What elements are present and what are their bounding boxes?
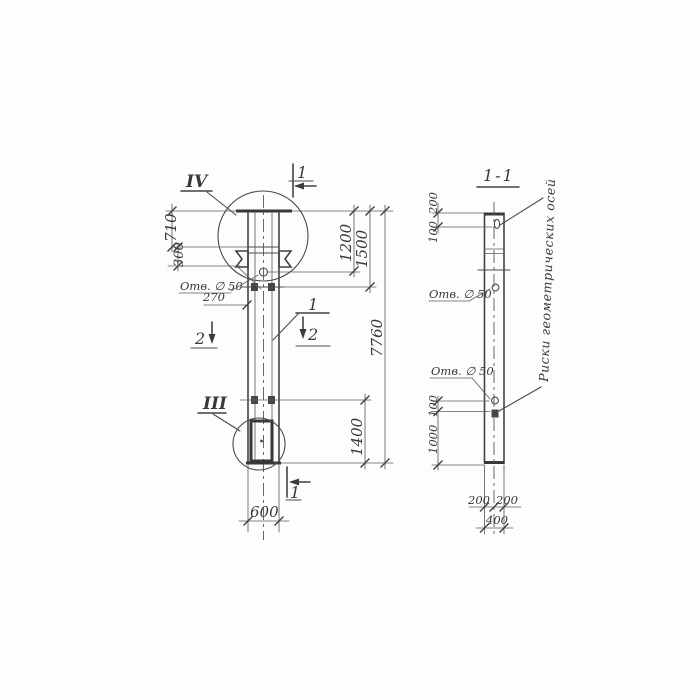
dim-100-top: 100	[426, 221, 440, 243]
dim-270: 270	[202, 290, 225, 304]
hole-lower-section	[492, 397, 499, 404]
flange-gusset-left	[236, 251, 248, 267]
hole-note-upper: Отв. ∅ 50	[429, 287, 492, 301]
section-title: 1-1	[477, 166, 519, 187]
hole-note-label: Отв. ∅ 50	[431, 364, 494, 378]
section-view-1-1: 1-1	[426, 166, 558, 536]
section-cut-mark-2-right: 2	[296, 317, 330, 346]
section-cut-label: 2	[307, 325, 318, 344]
section-cut-mark-1-bottom: 1	[286, 467, 310, 502]
dim-300: 300	[172, 242, 187, 267]
dim-200-top: 200	[426, 192, 440, 215]
dim-600: 600	[250, 503, 279, 521]
dim-100-bottom: 100	[426, 395, 440, 417]
dim-200-bottom-right: 200	[495, 493, 518, 507]
axis-mark-slot-top	[494, 219, 499, 228]
part-number-label: 1	[308, 295, 318, 314]
section-cut-mark-1-top: 1	[289, 163, 316, 197]
pile-column-technical-drawing: 1 1 2 2 IV III	[0, 0, 700, 700]
weld-mark	[251, 283, 258, 291]
axis-mark-square	[492, 410, 499, 418]
dim-7760: 7760	[368, 318, 386, 357]
dim-1000: 1000	[426, 425, 440, 454]
dim-1400: 1400	[348, 417, 366, 456]
detail-callout-III: III	[198, 394, 240, 431]
detail-label-IV: IV	[185, 172, 209, 192]
hole-upper-section	[492, 284, 499, 291]
drawing-sheet: 1 1 2 2 IV III	[0, 0, 700, 700]
dim-710: 710	[162, 213, 180, 242]
section-cut-mark-2-left: 2	[191, 322, 217, 348]
flange-gusset-right	[279, 251, 291, 267]
detail-label-III: III	[202, 394, 228, 414]
axes-note-label: Риски геометрических осей	[536, 178, 558, 383]
dim-1500: 1500	[353, 229, 371, 268]
center-dot	[260, 440, 263, 443]
section-cut-label: 2	[194, 329, 205, 348]
section-cut-label: 1	[297, 163, 307, 182]
section-cut-label: 1	[290, 483, 300, 502]
hole-note-label: Отв. ∅ 50	[429, 287, 492, 301]
weld-mark	[268, 283, 275, 291]
section-title-label: 1-1	[483, 166, 515, 185]
detail-callout-IV: IV	[181, 172, 236, 215]
elevation-view: 1 1 2 2 IV III	[162, 163, 393, 540]
geometric-axes-note: Риски геометрических осей	[499, 178, 558, 411]
dim-400: 400	[485, 513, 508, 527]
dim-200-bottom-left: 200	[467, 493, 490, 507]
